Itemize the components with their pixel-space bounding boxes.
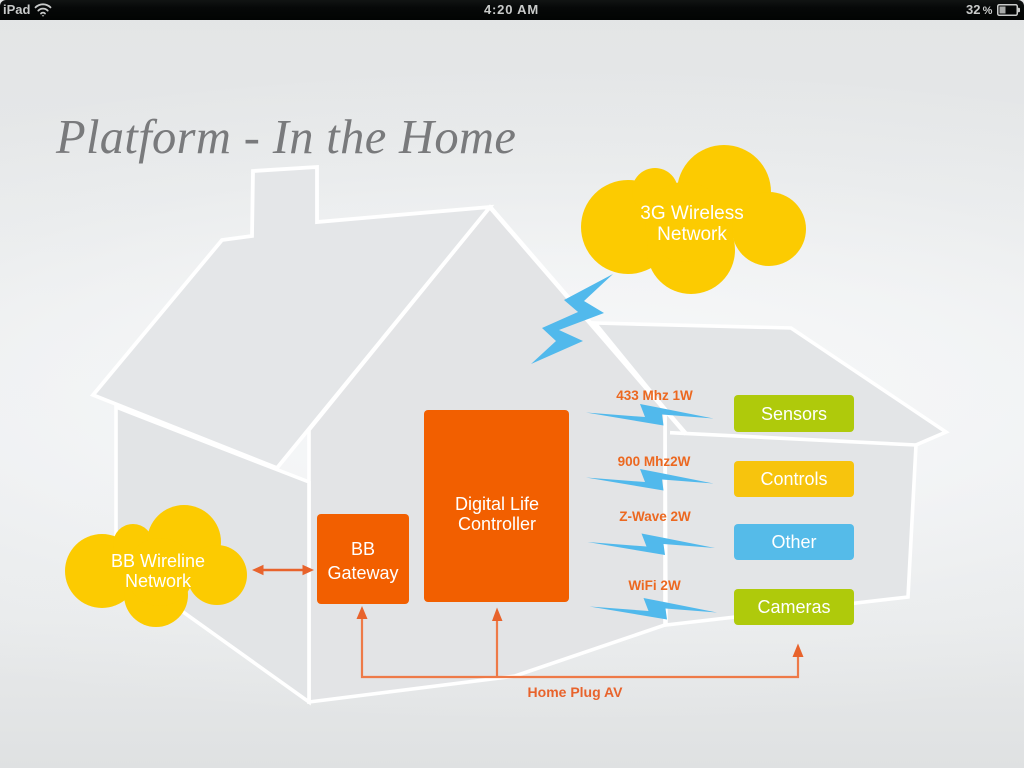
svg-text:Cameras: Cameras bbox=[757, 597, 830, 617]
svg-text:BB Wireline: BB Wireline bbox=[111, 551, 205, 571]
svg-text:900 Mhz2W: 900 Mhz2W bbox=[618, 454, 691, 469]
svg-text:WiFi 2W: WiFi 2W bbox=[628, 578, 681, 593]
svg-text:BB: BB bbox=[351, 539, 375, 559]
svg-text:Z-Wave 2W: Z-Wave 2W bbox=[619, 509, 691, 524]
svg-text:Home Plug AV: Home Plug AV bbox=[528, 684, 624, 700]
svg-text:Controller: Controller bbox=[458, 514, 536, 534]
svg-text:Sensors: Sensors bbox=[761, 404, 827, 424]
svg-text:Digital Life: Digital Life bbox=[455, 494, 539, 514]
svg-text:3G Wireless: 3G Wireless bbox=[640, 203, 743, 224]
svg-text:Network: Network bbox=[125, 571, 192, 591]
svg-text:Gateway: Gateway bbox=[327, 563, 398, 583]
svg-text:Controls: Controls bbox=[760, 469, 827, 489]
svg-text:Other: Other bbox=[771, 532, 816, 552]
svg-text:Network: Network bbox=[657, 224, 727, 245]
svg-text:433 Mhz 1W: 433 Mhz 1W bbox=[616, 388, 693, 403]
